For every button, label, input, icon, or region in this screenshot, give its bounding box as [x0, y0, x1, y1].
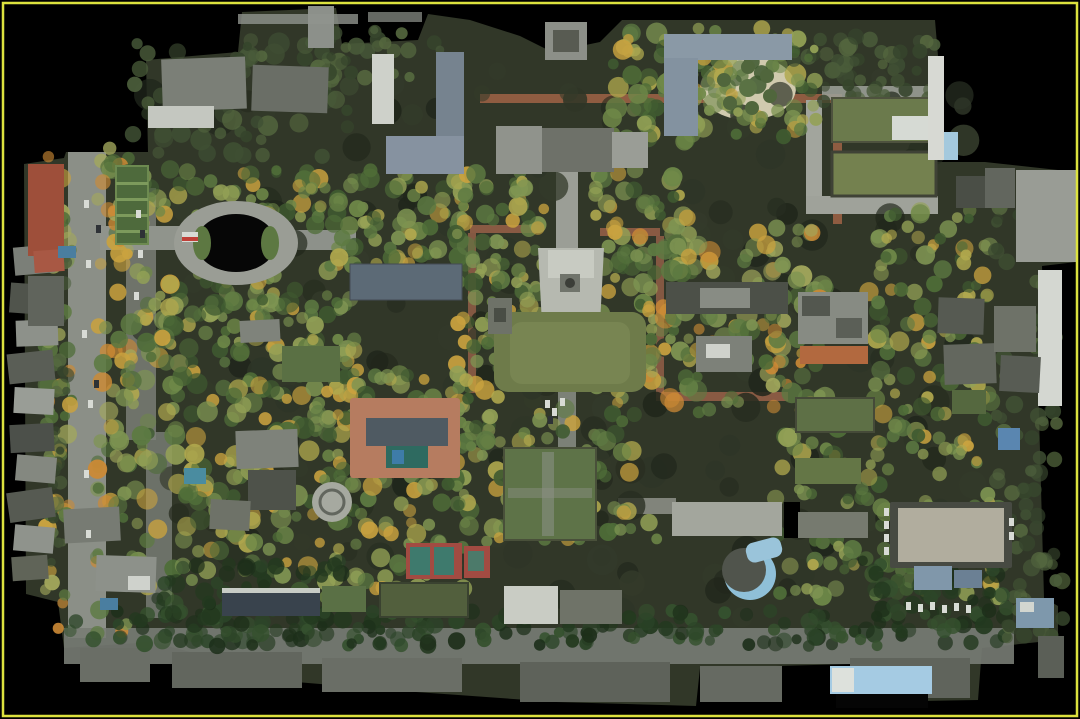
tree-canopy [619, 570, 645, 596]
garden-bed-6 [717, 73, 731, 87]
tree-canopy [609, 256, 626, 273]
tree-canopy [491, 281, 502, 292]
tree-canopy [357, 70, 373, 86]
rowhouse-8 [6, 487, 56, 523]
tree-canopy [247, 299, 258, 310]
tree-canopy [404, 72, 414, 82]
bl-building-3 [209, 499, 251, 531]
tree-canopy [397, 209, 417, 229]
tree-canopy [843, 494, 854, 505]
tree-canopy [333, 409, 344, 420]
tree-canopy [587, 545, 618, 576]
tree-canopy [460, 518, 470, 528]
tree-canopy [871, 361, 890, 380]
tree-canopy [164, 626, 175, 637]
tree-canopy [448, 632, 465, 649]
bl-building-1 [235, 429, 298, 469]
tree-canopy [897, 367, 915, 385]
garden-bed-3 [763, 89, 777, 103]
tree-canopy [474, 234, 491, 251]
tree-canopy [731, 129, 742, 140]
tr-l-building-h [664, 34, 792, 60]
tree-canopy [252, 624, 270, 642]
tree-canopy [315, 569, 329, 583]
tree-canopy [401, 369, 414, 382]
tree-canopy [887, 230, 897, 240]
tree-canopy [679, 210, 696, 227]
green-roof-small [322, 586, 366, 612]
tree-canopy [347, 333, 361, 347]
tree-canopy [334, 610, 353, 629]
tree-canopy [155, 206, 166, 217]
long-gray-notch [784, 502, 800, 538]
tree-canopy [94, 354, 113, 373]
tree-canopy [85, 631, 101, 647]
tree-canopy [877, 437, 888, 448]
tree-canopy [363, 476, 383, 496]
tennis-court-2 [434, 547, 454, 575]
tree-canopy [341, 105, 352, 116]
tree-canopy [53, 623, 64, 634]
tree-canopy [756, 111, 769, 124]
tree-canopy [251, 116, 264, 129]
tree-canopy [459, 373, 473, 387]
tree-canopy [433, 494, 451, 512]
tree-canopy [383, 526, 398, 541]
cr-terracotta-building [800, 346, 868, 364]
tree-canopy [906, 284, 922, 300]
main-building-west [496, 126, 542, 174]
tree-canopy [350, 539, 361, 550]
tree-canopy [179, 338, 198, 357]
tree-canopy [599, 470, 612, 483]
tree-canopy [315, 538, 325, 548]
tree-canopy [931, 615, 947, 631]
tree-canopy [219, 566, 235, 582]
tree-canopy [531, 221, 545, 235]
tree-canopy [768, 636, 783, 651]
tree-canopy [704, 105, 715, 116]
tree-canopy [306, 316, 324, 334]
tree-canopy [628, 84, 648, 104]
tree-canopy [153, 147, 165, 159]
tree-canopy [400, 42, 416, 58]
tree-canopy [889, 208, 902, 221]
pond-island-west [193, 226, 211, 260]
rm-gray-roof-3 [994, 306, 1036, 352]
teal-structure [184, 468, 206, 484]
tree-canopy [408, 243, 423, 258]
tree-canopy [167, 574, 186, 593]
tree-canopy [235, 147, 252, 164]
br-blue-block-2 [954, 570, 982, 588]
tree-canopy [221, 626, 232, 637]
tree-canopy [900, 317, 915, 332]
tree-canopy [721, 397, 733, 409]
tree-canopy [709, 200, 733, 224]
car-speck [906, 602, 911, 610]
tree-canopy [661, 260, 683, 282]
tree-canopy [198, 326, 212, 340]
mr-green-slab [795, 458, 861, 484]
garden-bed-1 [741, 60, 755, 74]
tree-canopy [184, 444, 204, 464]
tree-canopy [113, 631, 126, 644]
blue-shed [58, 246, 76, 258]
tree-canopy [110, 331, 128, 349]
tree-canopy [993, 468, 1005, 480]
tree-canopy [833, 541, 844, 552]
tree-canopy [202, 596, 216, 610]
tree-canopy [888, 416, 906, 434]
tree-canopy [95, 174, 111, 190]
tree-canopy [723, 229, 744, 250]
tree-canopy [790, 585, 801, 596]
tree-canopy [1017, 483, 1029, 495]
tree-canopy [99, 402, 118, 421]
tree-canopy [366, 605, 380, 619]
tree-canopy [740, 608, 753, 621]
tree-canopy [923, 313, 938, 328]
tr-l-building-v [664, 58, 698, 136]
tree-canopy [132, 518, 143, 529]
tree-canopy [867, 84, 882, 99]
tree-canopy [226, 388, 242, 404]
tree-canopy [848, 28, 864, 44]
tree-canopy [483, 409, 498, 424]
tree-canopy [109, 284, 126, 301]
tree-canopy [319, 182, 330, 193]
tree-canopy [996, 412, 1007, 423]
car-speck [138, 250, 143, 258]
tree-canopy [241, 166, 259, 184]
car-speck [86, 260, 91, 268]
tree-canopy [886, 599, 900, 613]
tree-canopy [913, 397, 931, 415]
cr-dark-building-mid [700, 288, 750, 308]
tree-canopy [271, 165, 281, 175]
tree-canopy [855, 482, 868, 495]
rowhouse-7 [15, 454, 57, 483]
tree-canopy [315, 200, 327, 212]
tree-canopy [332, 334, 343, 345]
tree-canopy [184, 305, 201, 322]
tree-canopy [496, 203, 510, 217]
tree-canopy [160, 298, 179, 317]
car-speck-dark [548, 416, 553, 424]
tree-canopy [974, 267, 992, 285]
tree-canopy [503, 539, 532, 568]
tree-canopy [930, 407, 945, 422]
tree-canopy [307, 334, 318, 345]
tr-white-roof [892, 116, 934, 140]
tree-canopy [52, 353, 66, 367]
long-gray-building [672, 502, 782, 536]
tree-canopy [532, 413, 547, 428]
tree-canopy [62, 397, 78, 413]
tree-canopy [139, 450, 159, 470]
tree-canopy [778, 428, 797, 447]
tree-canopy [509, 186, 522, 199]
tree-canopy [204, 294, 226, 316]
tree-canopy [658, 621, 673, 636]
car-speck [560, 398, 565, 406]
tennis-court-1 [410, 547, 430, 575]
tree-canopy [906, 441, 919, 454]
tree-canopy [169, 43, 186, 60]
bottom-blue-shadow [836, 694, 928, 708]
tl-wall-2 [368, 12, 422, 22]
tree-canopy [371, 548, 390, 567]
tree-canopy [349, 200, 366, 217]
tree-canopy [189, 491, 209, 511]
tree-canopy [713, 625, 724, 636]
tree-canopy [230, 342, 250, 362]
tree-canopy [1049, 574, 1062, 587]
tree-canopy [219, 357, 230, 368]
monument-dot [565, 278, 575, 288]
tree-canopy [179, 163, 196, 180]
tree-canopy [694, 324, 705, 335]
tree-canopy [626, 182, 643, 199]
tree-canopy [1033, 451, 1046, 464]
tree-canopy [491, 390, 505, 404]
tree-canopy [809, 113, 822, 126]
tree-canopy [858, 556, 868, 566]
tree-canopy [1006, 396, 1024, 414]
tree-canopy [192, 545, 204, 557]
tree-canopy [204, 174, 218, 188]
car-speck [1009, 518, 1014, 526]
tree-canopy [481, 536, 492, 547]
tree-canopy [1003, 619, 1016, 632]
car-speck [942, 605, 947, 613]
tree-canopy [702, 403, 716, 417]
tree-canopy [291, 511, 301, 521]
tree-canopy [1047, 559, 1058, 570]
tree-canopy [872, 640, 883, 651]
car-speck [82, 330, 87, 338]
tree-canopy [462, 393, 474, 405]
tl-gray-building-1 [161, 57, 247, 112]
white-striped-building [372, 54, 394, 124]
bl-green-roof-row [380, 583, 468, 617]
br-blue-block-1 [914, 566, 952, 590]
tree-canopy [829, 625, 846, 642]
tree-canopy [902, 623, 917, 638]
tree-canopy [606, 220, 621, 235]
garden-bed-4 [745, 101, 759, 115]
car-speck [545, 400, 550, 408]
tree-canopy [296, 312, 308, 324]
tree-canopy [995, 587, 1010, 602]
tree-canopy [774, 257, 790, 273]
tree-canopy [271, 508, 292, 529]
tree-canopy [843, 540, 862, 559]
tree-canopy [923, 330, 937, 344]
tree-canopy [806, 436, 819, 449]
tree-canopy [161, 160, 179, 178]
tree-canopy [379, 37, 391, 49]
cr-green-building [796, 398, 874, 432]
tree-canopy [801, 613, 818, 630]
tree-canopy [648, 243, 661, 256]
tree-canopy [807, 100, 819, 112]
tree-canopy [591, 429, 608, 446]
tree-canopy [978, 596, 993, 611]
tree-canopy [627, 407, 642, 422]
tree-canopy [601, 284, 616, 299]
tree-canopy [991, 243, 1003, 255]
tree-canopy [759, 354, 775, 370]
tree-canopy [912, 44, 927, 59]
tree-canopy [405, 228, 417, 240]
car-speck-dark [140, 230, 145, 238]
bottom-road-patch-1 [80, 648, 150, 682]
brick-building [28, 164, 64, 256]
tree-canopy [705, 636, 715, 646]
tree-canopy [341, 56, 351, 66]
tree-canopy [453, 500, 464, 511]
car-speck [134, 292, 139, 300]
tree-canopy [415, 181, 428, 194]
solar-roof-edge [222, 588, 320, 593]
round-plaza [312, 482, 352, 522]
tree-canopy [136, 635, 153, 652]
tree-canopy [663, 167, 682, 186]
tree-canopy [686, 622, 704, 640]
tree-canopy [1055, 611, 1070, 626]
tree-canopy [240, 131, 252, 143]
bottom-blue-building-end [832, 668, 854, 692]
br-hall-roof [898, 508, 1004, 562]
fr-top-roof [1016, 170, 1076, 262]
tree-canopy [511, 277, 522, 288]
tree-canopy [651, 453, 677, 479]
tree-canopy [763, 604, 777, 618]
tree-canopy [603, 108, 622, 127]
tree-canopy [616, 415, 628, 427]
tree-canopy [305, 629, 323, 647]
tree-canopy [417, 478, 434, 495]
tree-canopy [476, 431, 496, 451]
tree-canopy [617, 505, 631, 519]
tree-canopy [742, 638, 755, 651]
tree-canopy [805, 224, 818, 237]
tree-canopy [487, 214, 499, 226]
tree-canopy [361, 522, 378, 539]
tree-canopy [69, 614, 83, 628]
tree-canopy [767, 400, 781, 414]
tree-canopy [197, 612, 211, 626]
tree-canopy [788, 272, 806, 290]
tree-canopy [132, 38, 143, 49]
tree-canopy [767, 198, 786, 217]
car-speck [88, 400, 93, 408]
tree-canopy [158, 577, 170, 589]
tree-canopy [134, 614, 148, 628]
mr-gray-slab [798, 512, 868, 538]
tree-canopy [934, 233, 946, 245]
tree-canopy [824, 62, 841, 79]
tree-canopy [355, 508, 367, 520]
tree-canopy [1002, 632, 1013, 643]
tree-canopy [590, 210, 601, 221]
rowhouse-5 [13, 387, 54, 415]
tree-canopy [866, 459, 876, 469]
tree-canopy [999, 601, 1014, 616]
tree-canopy [1047, 548, 1060, 561]
tree-canopy [874, 582, 891, 599]
tree-canopy [419, 374, 430, 385]
tree-canopy [855, 634, 866, 645]
tree-canopy [391, 231, 406, 246]
tree-canopy [606, 425, 624, 443]
tree-canopy [706, 264, 720, 278]
main-building-mid [542, 128, 614, 172]
bl-building-2 [248, 470, 296, 510]
tree-canopy [246, 533, 264, 551]
tree-canopy [321, 386, 333, 398]
tree-canopy [268, 558, 285, 575]
tree-canopy [630, 249, 643, 262]
tree-canopy [338, 356, 352, 370]
tree-canopy [116, 389, 134, 407]
tree-canopy [341, 42, 352, 53]
tree-canopy [122, 249, 133, 260]
tree-canopy [43, 151, 54, 162]
car-speck-dark [96, 225, 101, 233]
tree-canopy [768, 624, 780, 636]
tree-canopy [197, 401, 218, 422]
tree-canopy [407, 524, 427, 544]
tree-canopy [794, 368, 811, 385]
tree-canopy [870, 325, 889, 344]
car-speck [136, 210, 141, 218]
tree-canopy [95, 258, 107, 270]
tree-canopy [681, 249, 697, 265]
tree-canopy [1035, 417, 1049, 431]
tree-canopy [794, 123, 807, 136]
tree-canopy [952, 212, 963, 223]
tl-white-building [148, 106, 214, 128]
tree-canopy [628, 632, 640, 644]
tree-canopy [279, 292, 300, 313]
tree-canopy [1020, 509, 1031, 520]
tree-canopy [343, 178, 359, 194]
tree-canopy [94, 434, 108, 448]
tree-canopy [263, 543, 276, 556]
car-speck [884, 547, 889, 555]
tree-canopy [912, 429, 926, 443]
br-structure-roof [1020, 602, 1034, 612]
tree-canopy [653, 201, 665, 213]
tree-canopy [256, 135, 267, 146]
tree-canopy [340, 77, 359, 96]
tree-canopy [190, 510, 211, 531]
br-gray-building [1038, 636, 1064, 678]
tree-canopy [993, 214, 1004, 225]
tree-canopy [420, 634, 436, 650]
tree-canopy [643, 301, 655, 313]
tree-canopy [893, 45, 908, 60]
tree-canopy [189, 558, 205, 574]
tree-canopy [165, 605, 182, 622]
tree-canopy [450, 316, 465, 331]
tree-canopy [367, 211, 381, 225]
tree-canopy [778, 617, 791, 630]
bl-edge-building-1 [63, 507, 121, 544]
